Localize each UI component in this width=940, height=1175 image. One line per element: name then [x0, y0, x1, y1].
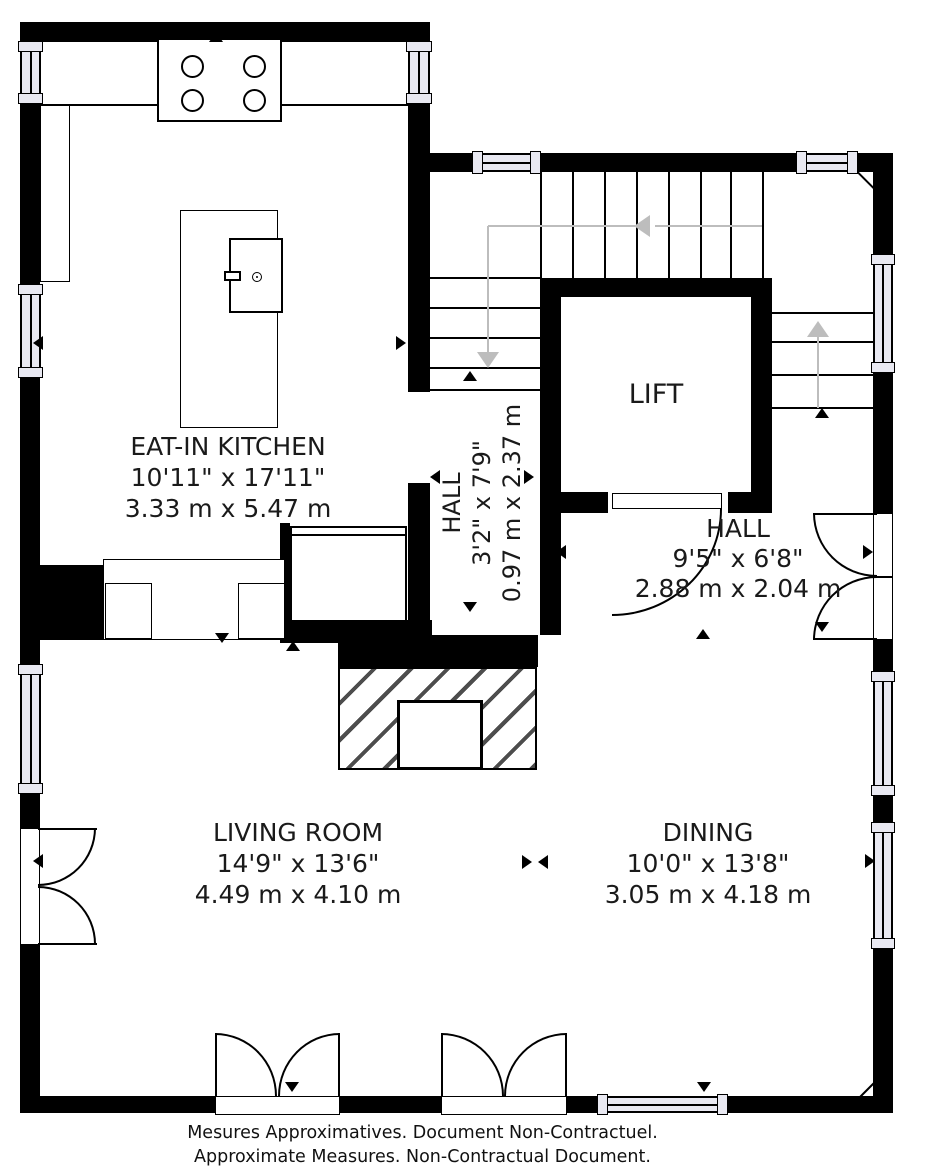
stair-tread: [430, 277, 542, 279]
counter-left: [40, 104, 70, 282]
hall-entry-label: HALL 9'5" x 6'8" 2.88 m x 2.04 m: [588, 514, 888, 604]
stair-guide-line: [487, 226, 489, 352]
stove-burner: [181, 89, 204, 112]
wall-hall-right-of-lift: [540, 513, 561, 635]
stove-burner: [181, 55, 204, 78]
kitchen-chair: [238, 583, 285, 639]
kitchen-metric: 3.33 m x 5.47 m: [78, 493, 378, 524]
stair-guide-line: [817, 336, 819, 408]
stair-guide-arrow-up: [807, 321, 829, 337]
stair-tread: [762, 172, 764, 278]
window: [797, 153, 857, 172]
stair-tread: [430, 337, 540, 339]
sink-faucet: [224, 271, 241, 281]
living-door-threshold: [20, 828, 40, 945]
living-room-metric: 4.49 m x 4.10 m: [148, 879, 448, 910]
window: [873, 823, 893, 948]
kitchen-corner-block: [37, 565, 103, 640]
disclaimer-line-en: Approximate Measures. Non-Contractual Do…: [0, 1145, 845, 1169]
french-door-threshold: [215, 1096, 340, 1115]
window: [598, 1096, 727, 1113]
disclaimer: Mesures Approximatives. Document Non-Con…: [0, 1121, 845, 1169]
living-room-name: LIVING ROOM: [148, 817, 448, 848]
fireplace-mantel-wall: [338, 635, 538, 667]
wall-kitchen-right-lower: [408, 483, 430, 620]
marker-left: [556, 545, 566, 559]
dining-label: DINING 10'0" x 13'8" 3.05 m x 4.18 m: [558, 817, 858, 910]
hall-upper-imperial: 3'2" x 7'9": [467, 393, 497, 613]
window: [20, 42, 41, 103]
dining-imperial: 10'0" x 13'8": [558, 848, 858, 879]
stair-tread: [772, 341, 873, 343]
stove-burner: [243, 55, 266, 78]
marker-right: [396, 336, 406, 350]
marker-left: [538, 855, 548, 869]
stair-tread: [772, 374, 873, 376]
lift-door-leaf: [612, 493, 722, 509]
marker-down: [697, 1082, 711, 1092]
french-door-arc: [504, 1033, 567, 1096]
marker-right: [522, 855, 532, 869]
living-door-arc: [38, 886, 96, 944]
kitchen-label: EAT-IN KITCHEN 10'11" x 17'11" 3.33 m x …: [78, 431, 378, 524]
marker-up: [286, 641, 300, 651]
stove-burner: [243, 89, 266, 112]
window: [873, 672, 893, 795]
living-room-imperial: 14'9" x 13'6": [148, 848, 448, 879]
stair-tread: [430, 307, 540, 309]
stair-guide-line: [488, 225, 635, 227]
kitchen-appliance: [290, 526, 407, 622]
lift-label: LIFT: [561, 379, 751, 410]
marker-up: [463, 371, 477, 381]
hall-upper-label: HALL 3'2" x 7'9" 0.97 m x 2.37 m: [437, 393, 529, 613]
dining-metric: 3.05 m x 4.18 m: [558, 879, 858, 910]
marker-up: [696, 629, 710, 639]
french-door-threshold: [441, 1096, 567, 1115]
living-door-arc: [38, 828, 96, 886]
dining-name: DINING: [558, 817, 858, 848]
marker-down: [815, 622, 829, 632]
fireplace-opening: [397, 700, 483, 770]
window: [873, 255, 893, 372]
french-door-arc: [215, 1033, 277, 1096]
kitchen-imperial: 10'11" x 17'11": [78, 462, 378, 493]
appliance-door-line: [292, 534, 405, 536]
hall-upper-name: HALL: [437, 393, 467, 613]
stair-guide-arrow-left: [634, 215, 650, 237]
stair-tread: [430, 389, 540, 391]
window: [473, 153, 540, 172]
hall-entry-imperial: 9'5" x 6'8": [588, 544, 888, 574]
stair-guide-arrow-down: [477, 352, 499, 368]
marker-right: [865, 854, 875, 868]
wall-kitchen-right-mid: [408, 153, 430, 392]
sink-knob-dot: [256, 276, 259, 279]
marker-left: [33, 854, 43, 868]
marker-down: [285, 1082, 299, 1092]
marker-up: [815, 408, 829, 418]
floor-plan: EAT-IN KITCHEN 10'11" x 17'11" 3.33 m x …: [0, 0, 940, 1175]
corner-chamfer-fill: [855, 172, 873, 191]
window: [20, 285, 41, 377]
disclaimer-line-fr: Mesures Approximatives. Document Non-Con…: [0, 1121, 845, 1145]
lift-name: LIFT: [561, 379, 751, 410]
marker-up: [209, 32, 223, 42]
stair-tread: [772, 312, 873, 314]
stair-guide-line: [655, 225, 762, 227]
stove: [157, 38, 282, 122]
kitchen-name: EAT-IN KITCHEN: [78, 431, 378, 462]
marker-left: [33, 336, 43, 350]
kitchen-chair: [105, 583, 152, 639]
living-room-label: LIVING ROOM 14'9" x 13'6" 4.49 m x 4.10 …: [148, 817, 448, 910]
window: [20, 665, 41, 793]
window: [408, 42, 430, 103]
hall-upper-metric: 0.97 m x 2.37 m: [497, 393, 527, 613]
marker-down: [215, 633, 229, 643]
french-door-arc: [441, 1033, 504, 1096]
sink-knob: [252, 272, 262, 282]
hall-entry-name: HALL: [588, 514, 888, 544]
hall-entry-metric: 2.88 m x 2.04 m: [588, 574, 888, 604]
